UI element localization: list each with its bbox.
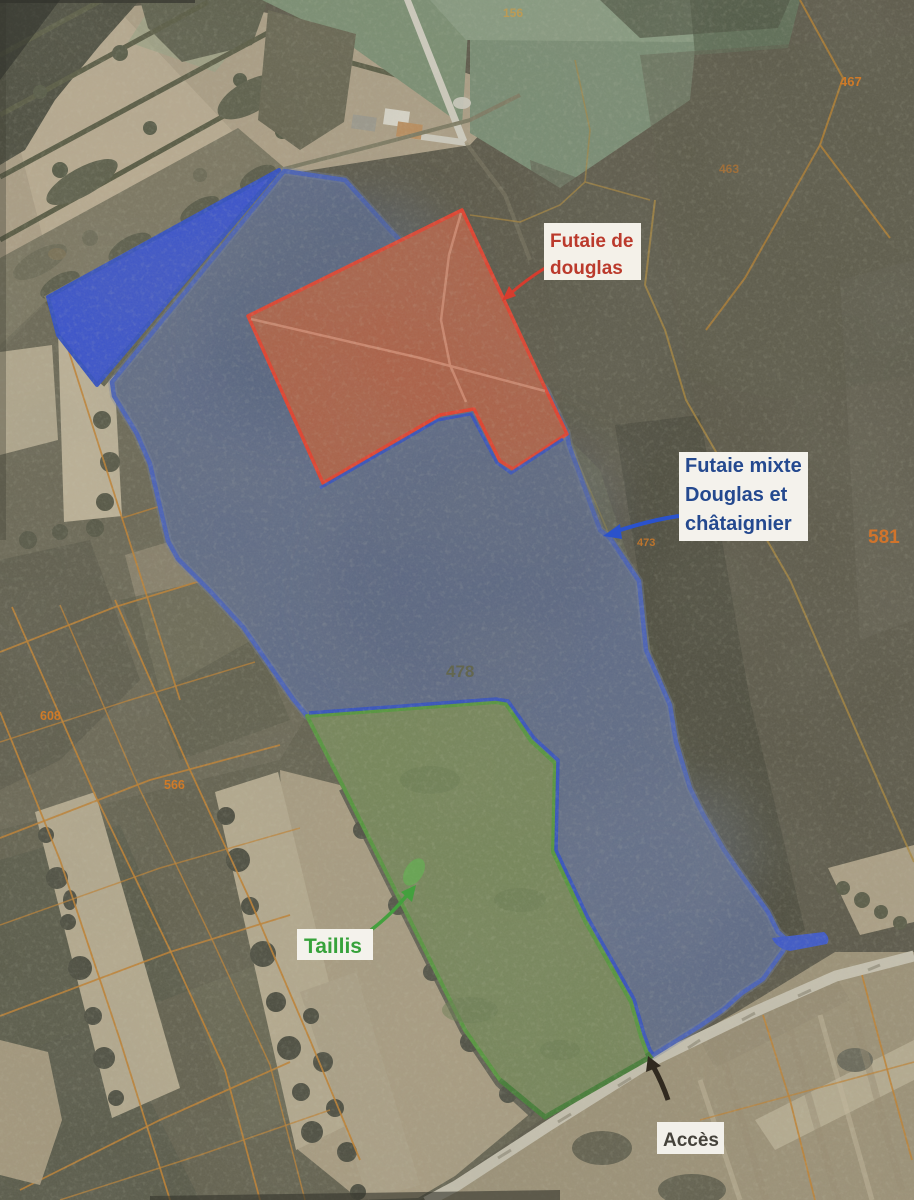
svg-text:Taillis: Taillis <box>304 935 362 958</box>
svg-text:581: 581 <box>868 527 900 548</box>
svg-text:463: 463 <box>719 162 739 176</box>
svg-text:478: 478 <box>446 662 474 681</box>
svg-text:608: 608 <box>40 709 61 723</box>
svg-text:Futaie de: Futaie de <box>550 231 633 252</box>
svg-text:Accès: Accès <box>663 1130 719 1151</box>
svg-text:châtaignier: châtaignier <box>685 513 792 535</box>
svg-text:566: 566 <box>164 778 185 792</box>
svg-text:Douglas et: Douglas et <box>685 484 788 506</box>
svg-text:Futaie mixte: Futaie mixte <box>685 455 802 477</box>
svg-text:467: 467 <box>840 74 862 89</box>
svg-text:473: 473 <box>637 537 655 549</box>
svg-text:156: 156 <box>503 6 523 20</box>
svg-text:douglas: douglas <box>550 258 623 279</box>
